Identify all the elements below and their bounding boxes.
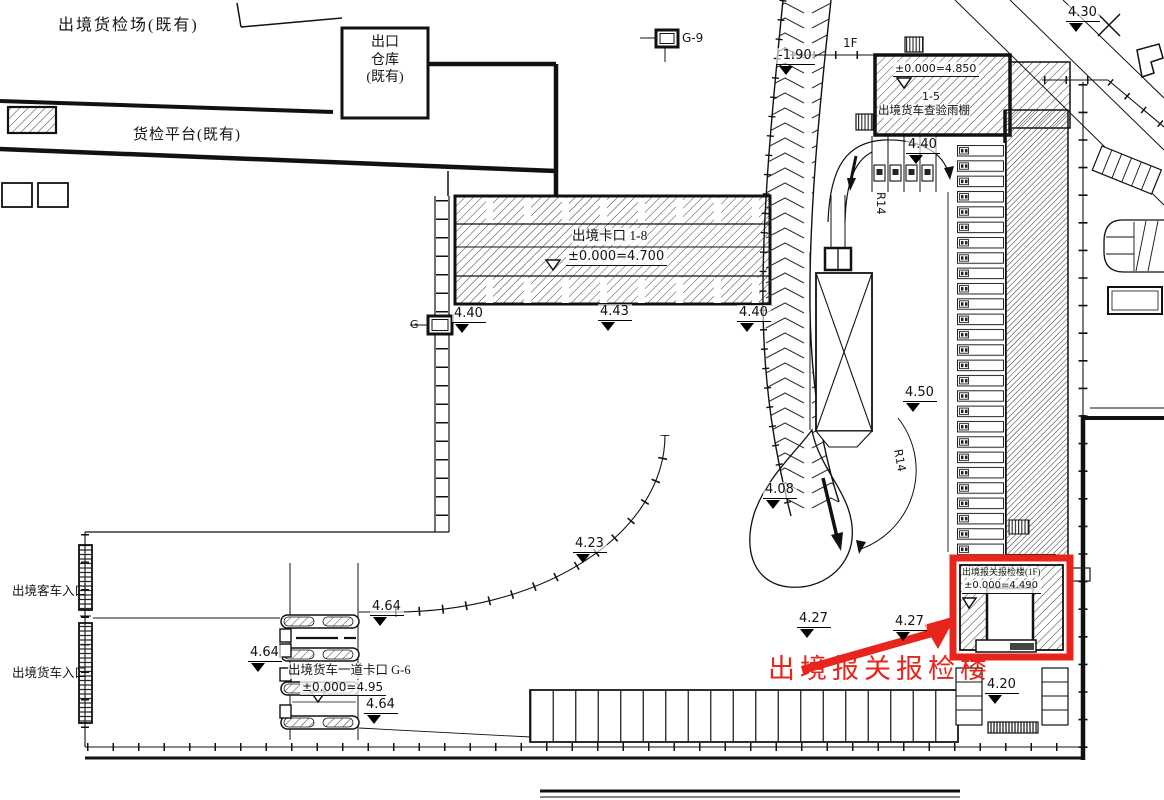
elevation-triangle-icon bbox=[373, 617, 387, 626]
spot-elevation-value: 4.50 bbox=[903, 385, 937, 402]
g6-checkpoint bbox=[93, 563, 530, 740]
main-checkpoint-label: 出境卡口 1-8 bbox=[572, 228, 647, 245]
spot-elevation-value: 4.23 bbox=[573, 536, 607, 553]
radius-arc bbox=[861, 418, 916, 549]
highlight-callout-label: 出境报关报检楼 bbox=[768, 653, 992, 687]
dock-building bbox=[948, 110, 1068, 558]
g6-checkpoint-elevation: ±0.000=4.95 bbox=[300, 680, 386, 696]
flow-arrow bbox=[851, 156, 856, 180]
elevation-triangle-icon bbox=[800, 629, 814, 638]
spot-elevation-marker: 4.40 bbox=[737, 303, 771, 332]
customs-building-label: 出境报关报检楼(1F) bbox=[962, 567, 1041, 578]
elevation-triangle-icon bbox=[988, 695, 1002, 704]
spot-elevation-value: 4.43 bbox=[598, 304, 632, 321]
bottom-boundary bbox=[85, 747, 1083, 758]
spot-elevation-marker: 4.64 bbox=[370, 597, 404, 626]
radius-label: R14 bbox=[874, 192, 888, 215]
gate-g9-label: G-9 bbox=[682, 31, 703, 46]
radius-arrowhead bbox=[856, 540, 866, 554]
floor-tag: 1F bbox=[843, 36, 858, 51]
spot-elevation-value: 4.64 bbox=[370, 599, 404, 616]
spot-elevation-value: 4.08 bbox=[763, 482, 797, 499]
stair-icon bbox=[905, 37, 923, 52]
elevation-triangle-icon bbox=[251, 663, 265, 672]
spot-elevation-marker: 4.27 bbox=[893, 612, 927, 641]
gate-mid-label: G- bbox=[410, 318, 423, 332]
weigh-canopy bbox=[810, 252, 872, 431]
spot-elevation-marker: -1.90 bbox=[776, 46, 815, 75]
main-checkpoint-elevation: ±0.000=4.700 bbox=[566, 249, 667, 266]
spot-elevation-value: 4.40 bbox=[737, 305, 771, 322]
passenger-entrance-label: 出境客车入口 bbox=[12, 584, 87, 600]
gate-g9-symbol bbox=[656, 30, 678, 47]
spot-elevation-marker: 4.08 bbox=[763, 480, 797, 509]
spot-elevation-marker: 4.40 bbox=[906, 135, 940, 164]
elevation-triangle-icon bbox=[896, 632, 910, 641]
spot-elevation-marker: 4.27 bbox=[797, 609, 831, 638]
g6-checkpoint-label: 出境货车一道卡口 G-6 bbox=[288, 663, 411, 679]
canopy-label: 出境货车查验雨棚 bbox=[878, 104, 970, 118]
elevation-triangle-icon bbox=[906, 403, 920, 412]
elevation-triangle-icon bbox=[367, 715, 381, 724]
angled-parking bbox=[1092, 146, 1161, 194]
elevation-triangle-icon bbox=[455, 324, 469, 333]
small-building bbox=[1137, 44, 1163, 77]
spot-elevation-marker: 4.64 bbox=[364, 695, 398, 724]
spot-elevation-marker: 4.23 bbox=[573, 534, 607, 563]
elevation-triangle-icon bbox=[740, 323, 754, 332]
stair-icon bbox=[856, 114, 873, 130]
spot-elevation-marker: 4.20 bbox=[985, 675, 1019, 704]
warehouse-label: 出口 仓库 (既有) bbox=[346, 34, 424, 87]
canopy-elevation: ±0.000=4.850 bbox=[893, 62, 979, 77]
elevation-triangle-icon bbox=[779, 66, 793, 75]
elevation-triangle-icon bbox=[909, 155, 923, 164]
grate-icon bbox=[988, 722, 1038, 733]
spot-elevation-marker: 4.40 bbox=[452, 304, 486, 333]
platform-label: 货检平台(既有) bbox=[133, 126, 241, 145]
spot-elevation-marker: 4.30 bbox=[1066, 3, 1100, 32]
left-boundary-fence bbox=[79, 532, 92, 747]
canopy-number: 1-5 bbox=[922, 90, 940, 104]
spot-elevation-value: 4.27 bbox=[893, 614, 927, 631]
customs-building-elevation: ±0.000=4.490 bbox=[962, 580, 1041, 594]
gate-bar-icon bbox=[79, 545, 92, 610]
elevation-triangle-icon bbox=[601, 322, 615, 331]
spot-elevation-value: 4.40 bbox=[452, 306, 486, 323]
spot-elevation-value: 4.20 bbox=[985, 677, 1019, 694]
spot-elevation-marker: 4.64 bbox=[248, 643, 282, 672]
site-plan-drawing: 出境货检场(既有) 出口 仓库 (既有) 货检平台(既有) 出境卡口 1-8 ±… bbox=[0, 0, 1164, 800]
dock-slots bbox=[957, 143, 1005, 557]
spot-elevation-value: 4.64 bbox=[364, 697, 398, 714]
spot-elevation-value: 4.27 bbox=[797, 611, 831, 628]
spot-elevation-value: 4.30 bbox=[1066, 5, 1100, 22]
spot-elevation-value: 4.64 bbox=[248, 645, 282, 662]
spot-elevation-marker: 4.43 bbox=[598, 302, 632, 331]
spot-elevation-value: 4.40 bbox=[906, 137, 940, 154]
stair-icon bbox=[1009, 520, 1029, 534]
elevation-triangle-icon bbox=[576, 554, 590, 563]
truck-entrance-label: 出境货车入口 bbox=[12, 666, 87, 682]
elevation-triangle-icon bbox=[766, 500, 780, 509]
spot-elevation-value: -1.90 bbox=[776, 48, 815, 65]
yard-label: 出境货检场(既有) bbox=[58, 16, 199, 36]
spot-elevation-marker: 4.50 bbox=[903, 383, 937, 412]
flow-arrowhead bbox=[944, 166, 954, 180]
elevation-triangle-icon bbox=[1069, 23, 1083, 32]
